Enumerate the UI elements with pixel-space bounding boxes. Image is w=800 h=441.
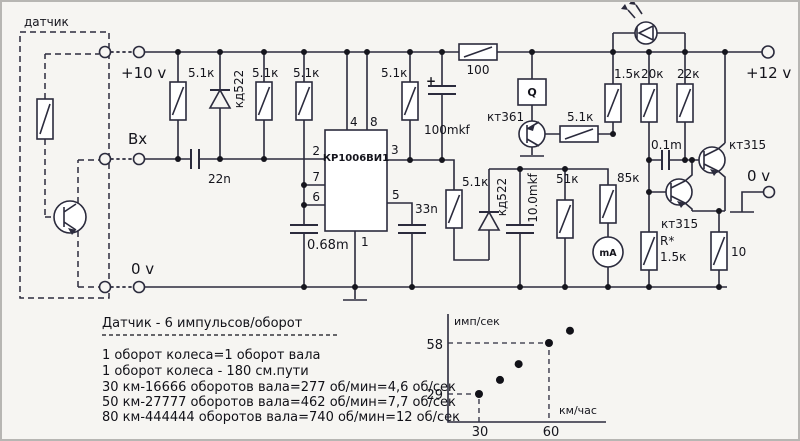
pin-5: 5 [392,188,400,202]
notes-block: Датчик - 6 импульсов/оборот 1 оборот кол… [102,316,460,425]
note-line: 1 оборот колеса - 180 см.пути [102,364,309,379]
label-r51k: 51к [556,172,579,186]
sensor-terminal-bot [100,282,111,293]
label-r-top1: 5.1к [188,66,214,80]
circuit-diagram: датчик +10 v Вх 0 v +12 v 0 v 5.1к кд522… [2,2,798,439]
label-kt315-bot: кт315 [661,217,698,231]
pin-3: 3 [391,143,399,157]
label-0v-left: 0 v [131,260,154,278]
sensor-box [20,32,109,298]
label-ma: mA [599,248,617,259]
resistor-1k5 [605,84,621,122]
note-line: 30 км-16666 оборотов вала=277 об/мин=4,6… [102,380,456,395]
terminal-vx [134,154,145,165]
label-c-in: 22n [208,172,231,186]
resistor-5k1-3 [296,82,312,120]
label-vx: Вх [128,130,147,148]
label-r-out: 5.1к [567,110,593,124]
label-c10mkf: 10.0mkf [526,172,540,222]
resistor-5k1-4 [402,82,418,120]
label-kt315-top: кт315 [729,138,766,152]
label-r-top4: 5.1к [381,66,407,80]
resistor-22k [677,84,693,122]
resistor-20k [641,84,657,122]
notes-title: Датчик - 6 импульсов/оборот [102,316,303,331]
note-line: 80 км-444444 оборотов вала=740 об/мин=12… [102,410,460,425]
sensor-transistor-icon [54,201,86,235]
resistor-5k1-5 [446,190,462,228]
label-c068: 0.68m [307,238,349,253]
terminal-0v-left [134,282,145,293]
resistor-51k [557,200,573,238]
resistor-5k1-2 [256,82,272,120]
schematic-page: датчик +10 v Вх 0 v +12 v 0 v 5.1к кд522… [0,0,800,441]
label-c100mkf-plus: + [426,74,436,88]
transistor-kt361-icon [519,121,545,147]
label-r-top2: 5.1к [252,66,278,80]
resistor-85k [600,185,616,223]
chart-ylabel: имп/сек [454,315,500,328]
label-r-star-val: 1.5к [660,250,686,264]
terminal-plus12 [762,46,774,58]
ic-kr1006vi1 [325,130,387,231]
chart-point [496,376,504,384]
label-d-top: кд522 [232,70,246,108]
label-r-star: R* [660,234,674,248]
chart-ytick-29: 29 [426,388,443,403]
pin-1: 1 [361,235,369,249]
chart-xlabel: км/час [559,404,597,417]
label-c01m: 0.1m [651,138,682,152]
chart-xtick-30: 30 [472,425,489,439]
sensor-terminal-top [100,47,111,58]
pin-8: 8 [370,115,378,129]
terminal-plus10 [134,47,145,58]
chart-point [545,339,553,347]
sensor-terminal-mid [100,154,111,165]
pin-7: 7 [312,170,320,184]
transistor-kt315-bottom-icon [666,179,692,208]
terminal-0v-right [764,187,775,198]
resistor-100 [459,44,497,60]
label-r51k-drv: 5.1к [462,175,488,189]
pin-2: 2 [312,144,320,158]
chart-point [475,390,483,398]
pin-4: 4 [350,115,358,129]
label-c100mkf: 100mkf [424,123,471,137]
note-line: 1 оборот колеса=1 оборот вала [102,348,321,363]
resistor-r-star [641,232,657,270]
chart-xtick-60: 60 [543,425,560,439]
resistor-10 [711,232,727,270]
transistor-kt315-top-icon [699,147,725,176]
pin-6: 6 [312,190,320,204]
label-plus12: +12 v [746,64,791,82]
sensor-label: датчик [24,15,69,29]
led-icon [621,2,657,44]
chart-ytick-58: 58 [426,338,443,353]
label-plus10: +10 v [121,64,166,82]
label-0v-right: 0 v [747,167,770,185]
label-r1k5: 1.5к [614,67,640,81]
resistor-5k1-1 [170,82,186,120]
label-r-top3: 5.1к [293,66,319,80]
label-q: Q [527,86,536,99]
ic-name: КР1006ВИ1 [323,153,389,164]
note-line: 50 км-27777 оборотов вала=462 об/мин=7,7… [102,395,456,410]
diode-kd522-1 [210,90,230,108]
label-r10: 10 [731,245,746,259]
label-r20k: 20к [641,67,664,81]
label-d2: кд522 [495,178,509,216]
chart-point [515,360,523,368]
label-r100: 100 [467,63,490,77]
label-r85k: 85к [617,171,640,185]
label-c33n: 33n [415,202,438,216]
chart-point [566,327,574,335]
chart-points [475,327,574,398]
label-kt361: кт361 [487,110,524,124]
label-r22k: 22к [677,67,700,81]
resistor-5k1-out [560,126,598,142]
